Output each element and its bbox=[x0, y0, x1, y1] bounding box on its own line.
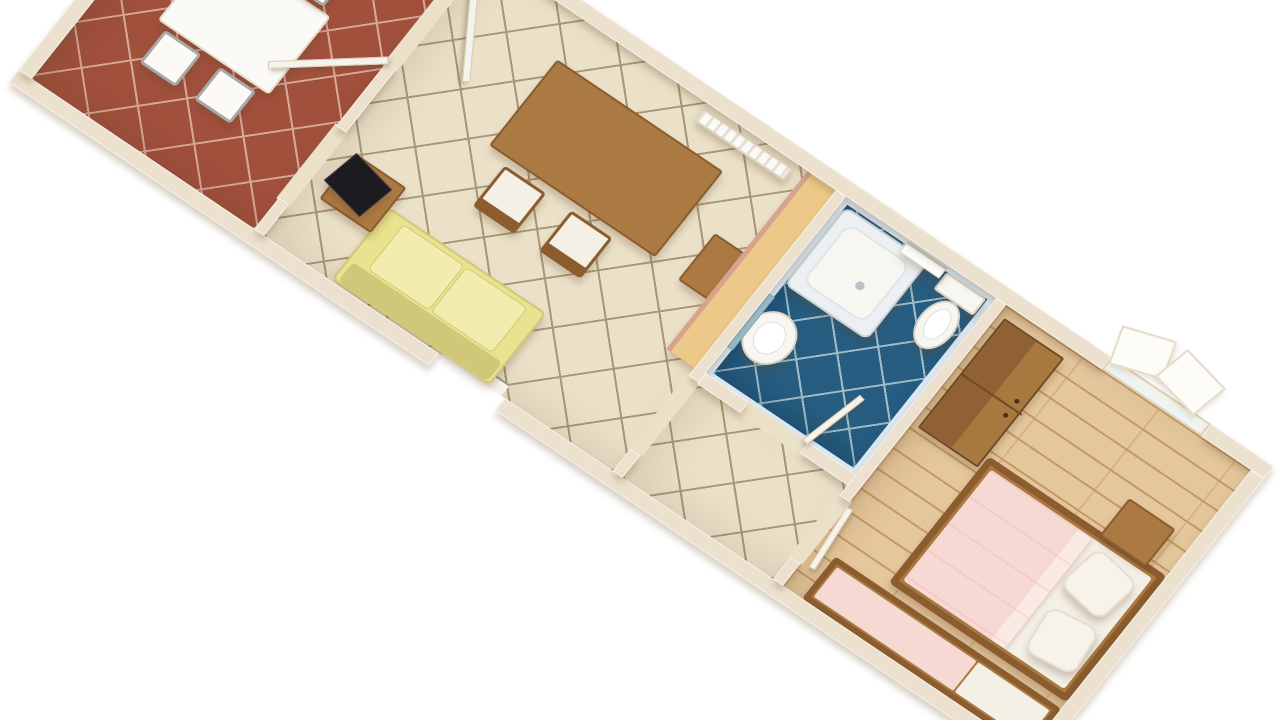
door-glass bbox=[288, 60, 369, 65]
wardrobe-handle bbox=[1013, 398, 1020, 405]
floorplan bbox=[32, 0, 1251, 720]
wardrobe-door-split bbox=[962, 374, 1023, 416]
floorplan-scene bbox=[0, 0, 1280, 720]
shower-drain bbox=[853, 280, 866, 292]
wardrobe-handle bbox=[1002, 412, 1009, 419]
